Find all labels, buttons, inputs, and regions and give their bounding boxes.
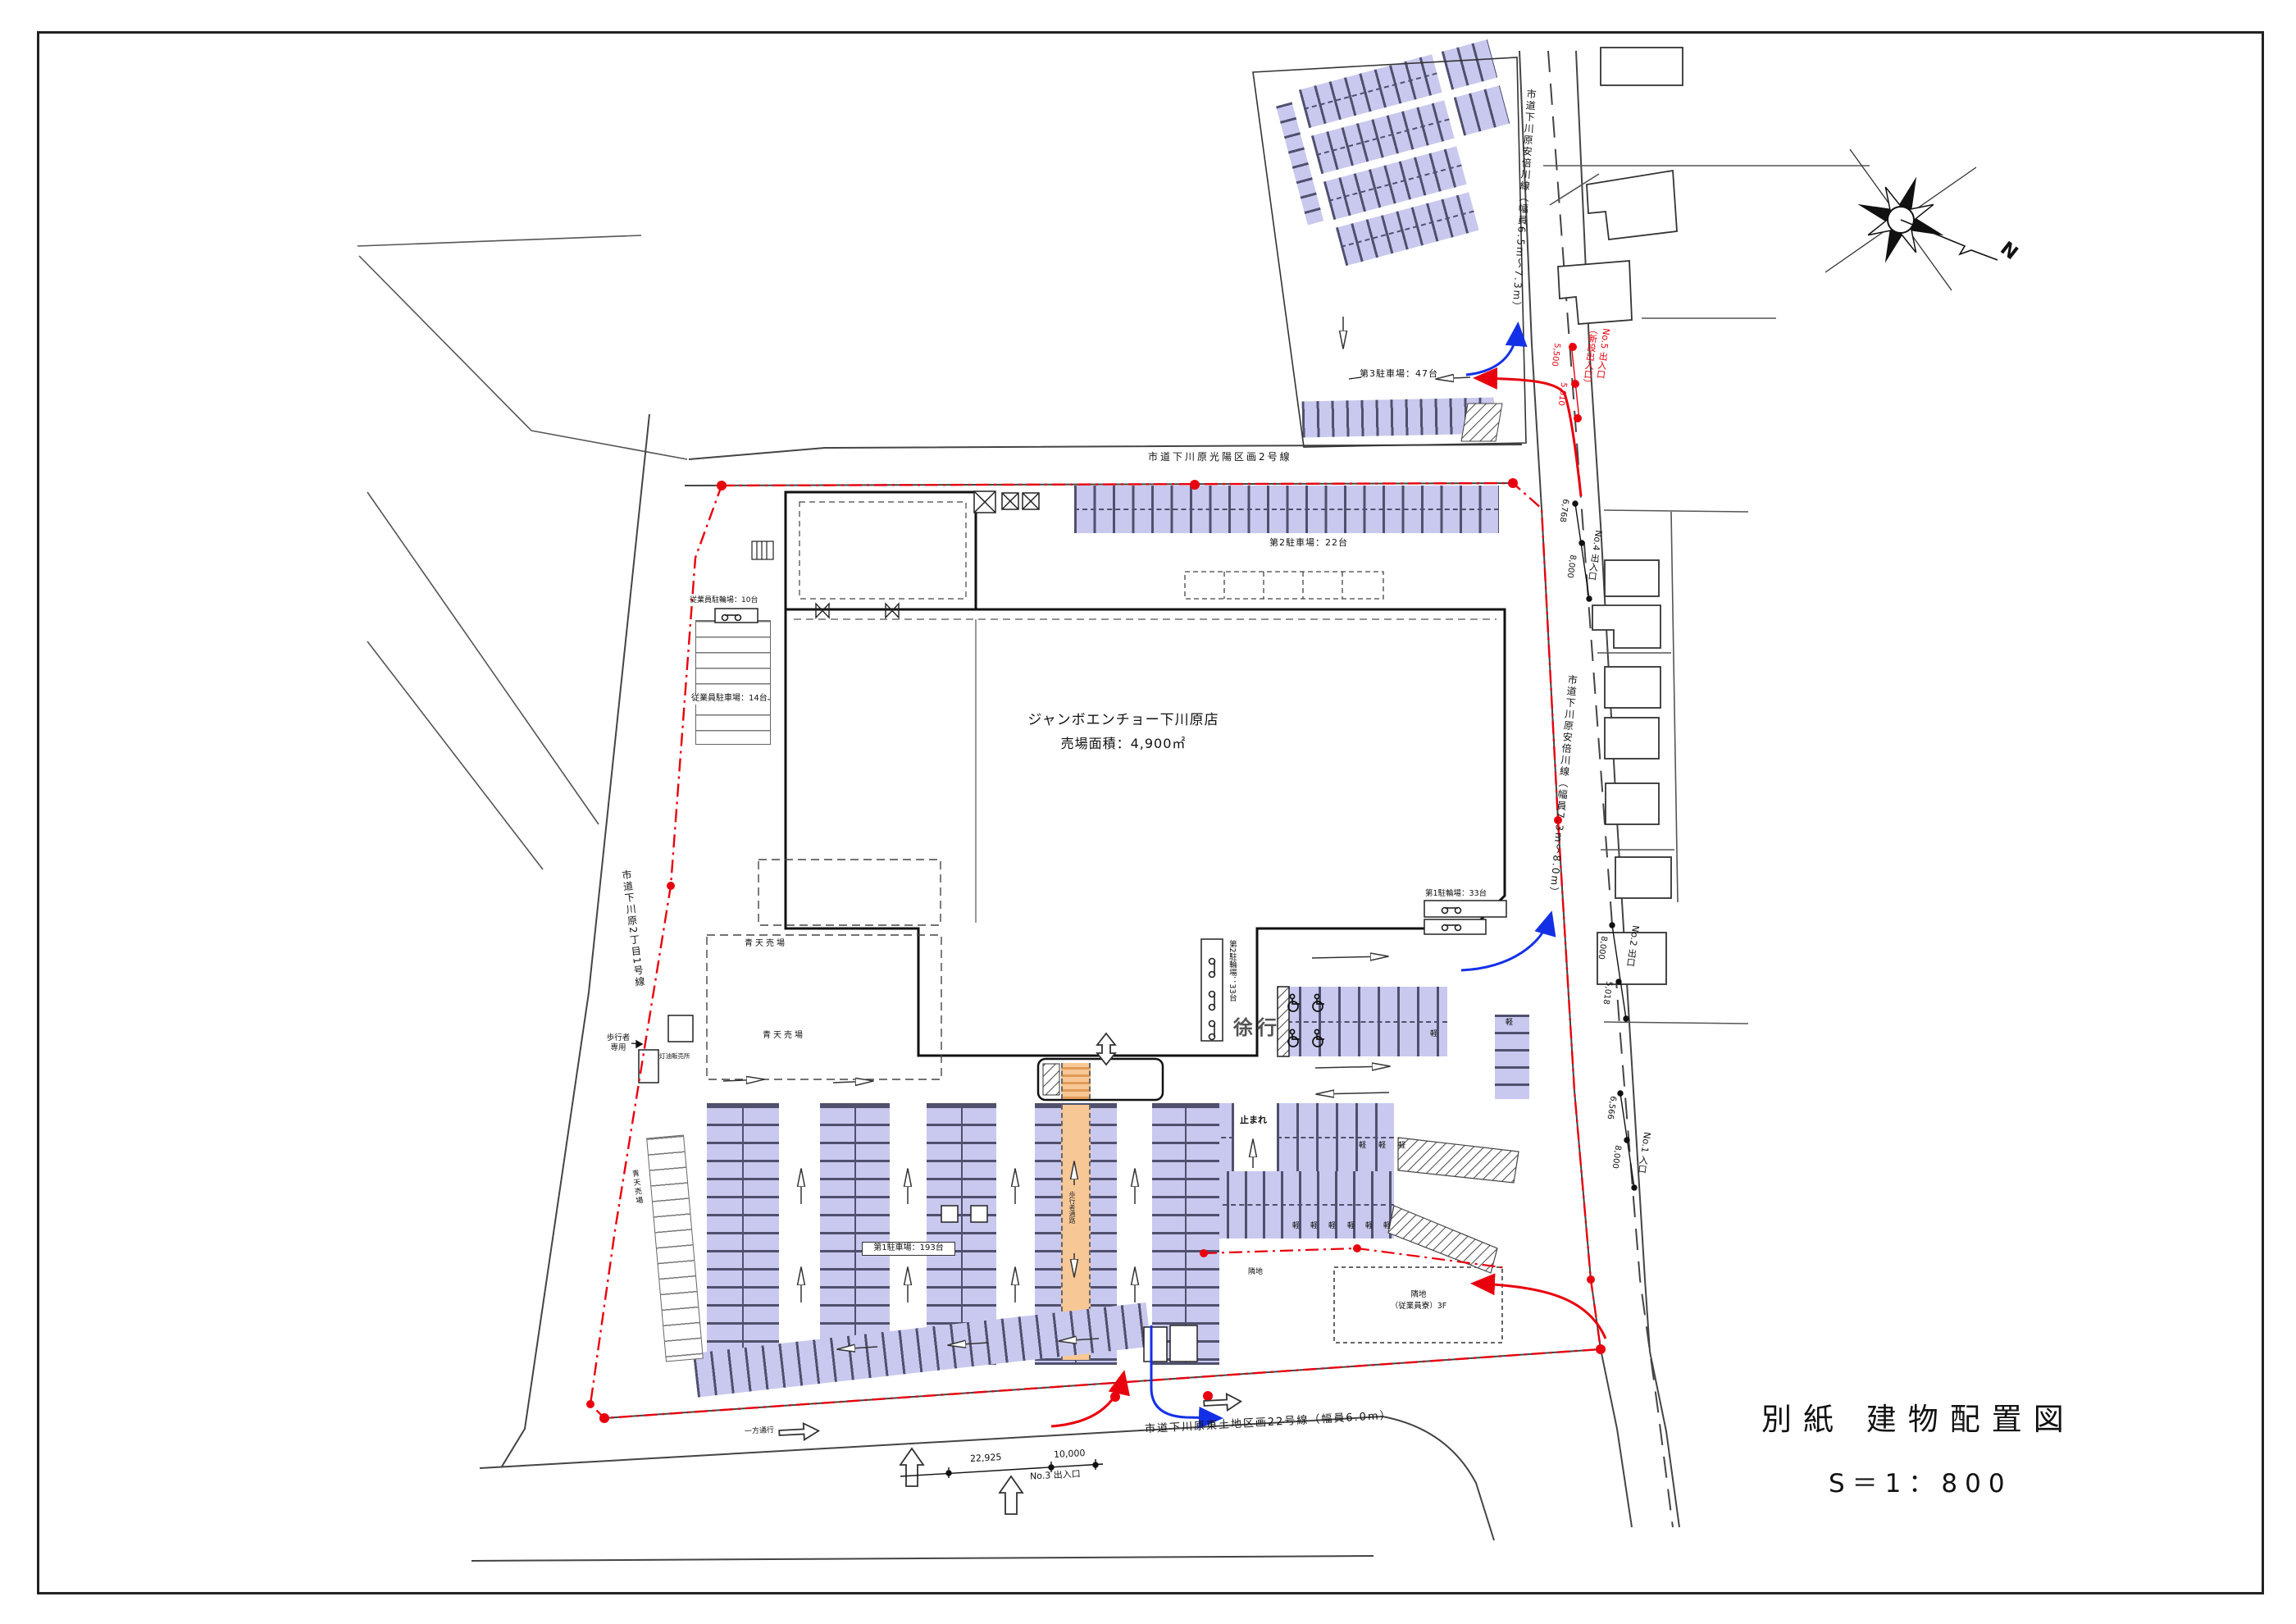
slow-label: 徐行 (1233, 1015, 1281, 1040)
lot2-label: 第2駐車場：22台 (1269, 537, 1348, 549)
lot3-parcel (1253, 57, 1526, 447)
hatch-band (1388, 1206, 1497, 1273)
lot3-hatch (1461, 404, 1502, 441)
kei-label: 軽 (1292, 1222, 1300, 1231)
page-title: 別紙 建物配置図 (1761, 1401, 2075, 1439)
page-scale: S＝1：800 (1829, 1468, 2012, 1500)
kei-label: 軽 (1347, 1222, 1355, 1231)
kei-label: 軽 (1365, 1222, 1373, 1231)
bike1-label: 第1駐輪場：33台 (1425, 889, 1487, 899)
left-lot-lines (358, 235, 687, 869)
pedestrian-only-label: 歩行者専用 (605, 1033, 631, 1053)
road-label-top: 市道下川原光陽区画2号線 (1148, 451, 1292, 463)
entrance3-dim2: 10,000 (1054, 1448, 1086, 1461)
one-way-label: 一方通行 (745, 1426, 775, 1437)
hatch-band (1398, 1138, 1519, 1183)
kei-label: 軽 (1398, 1142, 1405, 1151)
adjacent-dorm-line2: （従業員寮）3F (1361, 1301, 1476, 1312)
lot1-label: 第1駐車場：193台 (862, 1242, 955, 1256)
building-outline (707, 491, 1505, 1343)
staff-car-label: 従業員駐車場：14台 (691, 694, 768, 705)
linework (0, 0, 2296, 1624)
kei-label: 軽 (1328, 1222, 1336, 1231)
site-plan-canvas: 別紙 建物配置図 S＝1：800 N ジャンボエンチョー下川原店 売場面積：4,… (0, 0, 2296, 1624)
walkway-canopy-strip (1061, 1063, 1091, 1099)
kerosene-label: 灯油販売所 (659, 1052, 690, 1060)
kei-label: 軽 (1383, 1222, 1391, 1231)
wheelchair-icons (1288, 994, 1324, 1047)
adjacent-dorm-line1: 隣地 (1361, 1289, 1476, 1301)
open-air-label: 青天売場 (763, 1031, 805, 1042)
kei-label: 軽 (1378, 1142, 1386, 1151)
kei-label: 軽 (1359, 1142, 1366, 1151)
lot3-label: 第3駐車場：47台 (1360, 368, 1438, 380)
building-name: ジャンボエンチョー下川原店 (996, 709, 1250, 732)
entrance3-dim1: 22,925 (970, 1452, 1002, 1465)
kei-label: 軽 (1310, 1222, 1318, 1231)
stop-label: 止まれ (1240, 1115, 1267, 1126)
building-name-block: ジャンボエンチョー下川原店 売場面積：4,900㎡ (996, 709, 1250, 755)
walkway-label: 歩行者通路 (1068, 1191, 1076, 1224)
open-air-label: 青天売場 (745, 939, 787, 950)
hollow-arrows (779, 1033, 1241, 1514)
building-area: 売場面積：4,900㎡ (996, 732, 1250, 755)
adjacent-dorm-label: 隣地 （従業員寮）3F (1361, 1289, 1476, 1313)
kei-label: 軽 (1506, 1019, 1513, 1028)
bike2-label: 第2駐輪場：33台 (1227, 940, 1237, 1001)
kei-label: 軽 (1430, 1030, 1437, 1039)
staff-bike-label: 従業員駐輪場：10台 (690, 596, 758, 605)
adjacent-label: 隣地 (1248, 1268, 1263, 1277)
